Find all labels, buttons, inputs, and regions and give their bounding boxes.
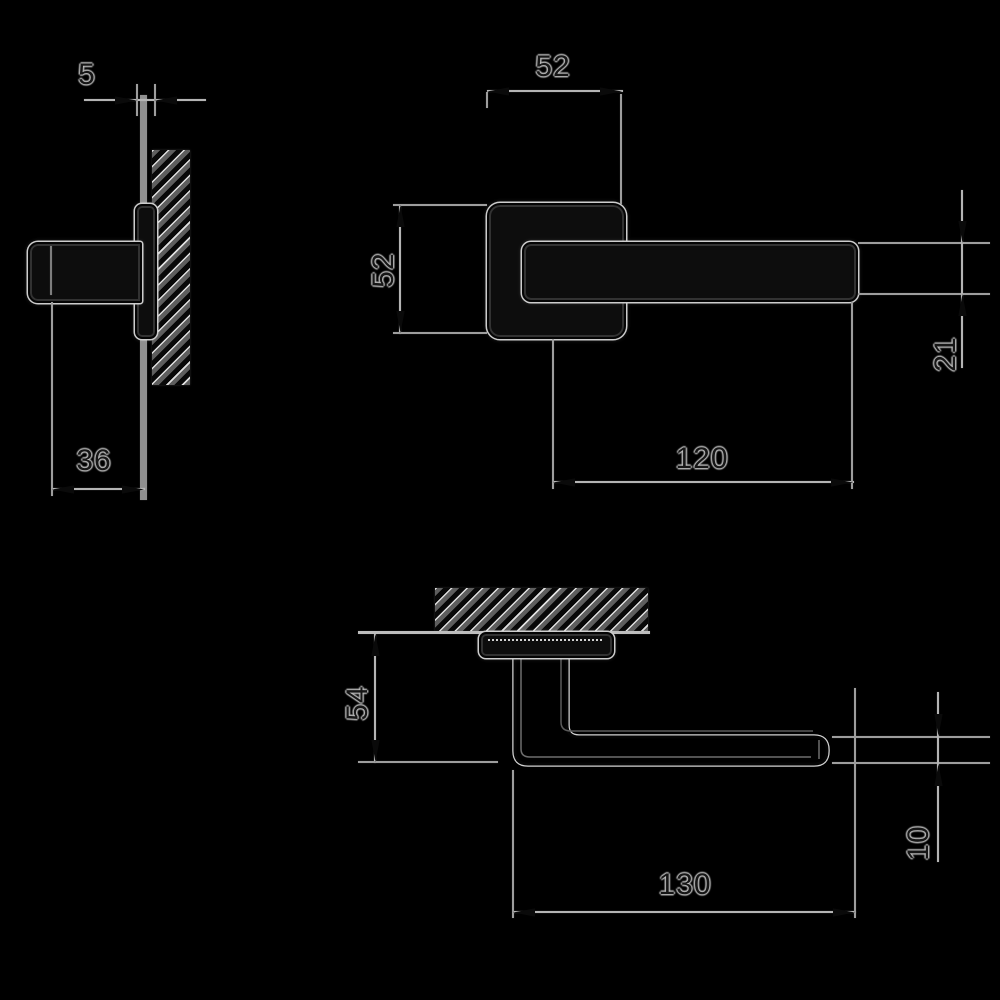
dim-rose-thickness-value: 5 [70,58,104,92]
dim-rose-thickness-line [84,99,206,101]
dim-grip-width-arrow-up-icon [958,294,967,316]
dim-overall-length-arrow-left-icon [513,908,535,917]
dim-grip-width-ext-bottom [858,293,990,295]
plan-grip-cap-line [50,246,52,295]
dim-rose-width-ext-left [486,92,488,108]
technical-drawing-canvas: 5 36 52 52 120 [0,0,1000,1000]
dim-lever-length-ext-right [851,302,853,489]
dim-grip-clearance-value: 36 [64,444,124,478]
dim-rose-height-arrow-up-icon [396,205,405,227]
section-rose-profile [479,632,614,658]
dim-grip-width-arrow-down-icon [958,221,967,243]
plan-door-hatch [152,150,190,385]
dim-rose-thickness-arrow-left-icon [155,96,177,105]
dim-grip-thickness-value: 10 [902,817,936,869]
dim-overall-length-line [513,911,856,913]
dim-lever-length-ext-left [552,339,554,489]
section-door-hatch [435,588,648,631]
dim-rose-height-ext-bottom [393,332,487,334]
dim-overall-length-ext-right [854,688,856,918]
dim-lever-length-line [553,481,854,483]
section-rose-dotted-line [488,639,602,641]
dim-grip-clearance-arrow-left-icon [52,485,74,494]
dim-projection-ext-bottom [358,761,498,763]
dim-lever-length-value: 120 [662,442,742,476]
dim-rose-width-value: 52 [523,50,583,84]
dim-projection-arrow-up-icon [371,634,380,656]
dim-overall-length-arrow-right-icon [833,908,855,917]
dim-grip-width-ext-top [858,242,990,244]
section-handle-profile [505,648,845,778]
dim-grip-clearance-ext [51,302,53,496]
dim-lever-length-arrow-right-icon [831,478,853,487]
dim-rose-width-arrow-left-icon [487,87,509,96]
dim-rose-width-arrow-right-icon [600,87,622,96]
dim-rose-thickness-ext-right [154,84,156,116]
dim-grip-width-value: 21 [929,328,963,380]
dim-overall-length-value: 130 [645,868,725,902]
dim-projection-arrow-down-icon [371,740,380,762]
dim-rose-thickness-ext-left [136,84,138,116]
dim-rose-height-arrow-down-icon [396,311,405,333]
dim-rose-width-ext-right [620,94,622,204]
dim-rose-height-value: 52 [367,244,401,296]
front-lever-bar [522,242,858,302]
dim-rose-height-ext-top [393,204,487,206]
dim-grip-thickness-arrow-up-icon [934,764,943,786]
dim-projection-value: 54 [341,677,375,729]
dim-overall-length-ext-left [512,770,514,918]
dim-rose-thickness-arrow-right-icon [115,96,137,105]
dim-lever-length-arrow-left-icon [553,478,575,487]
plan-lever-grip [28,242,142,303]
dim-grip-thickness-arrow-down-icon [934,714,943,736]
